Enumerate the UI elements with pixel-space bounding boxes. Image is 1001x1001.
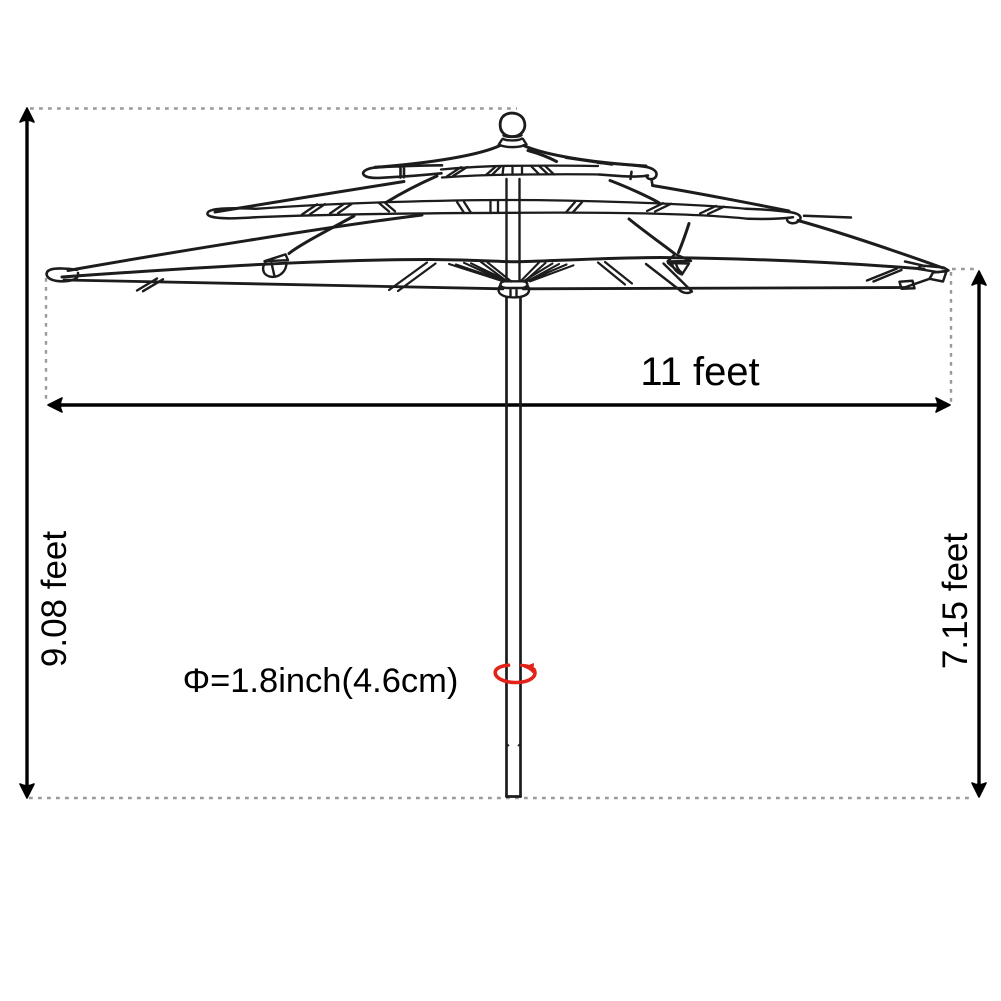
svg-text:Φ=1.8inch(4.6cm): Φ=1.8inch(4.6cm) — [183, 662, 459, 700]
svg-text:9.08 feet: 9.08 feet — [35, 531, 74, 667]
svg-text:7.15 feet: 7.15 feet — [936, 533, 975, 669]
svg-text:11 feet: 11 feet — [640, 350, 759, 394]
